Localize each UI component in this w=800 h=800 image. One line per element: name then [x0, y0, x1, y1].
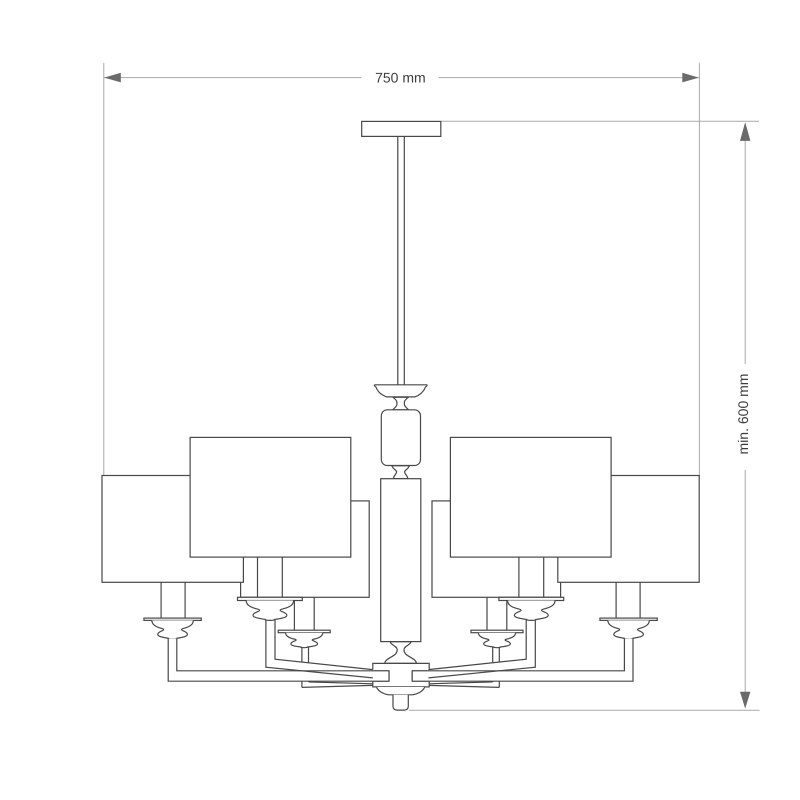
svg-text:750 mm: 750 mm [375, 69, 426, 85]
svg-text:min. 600 mm: min. 600 mm [735, 374, 751, 455]
